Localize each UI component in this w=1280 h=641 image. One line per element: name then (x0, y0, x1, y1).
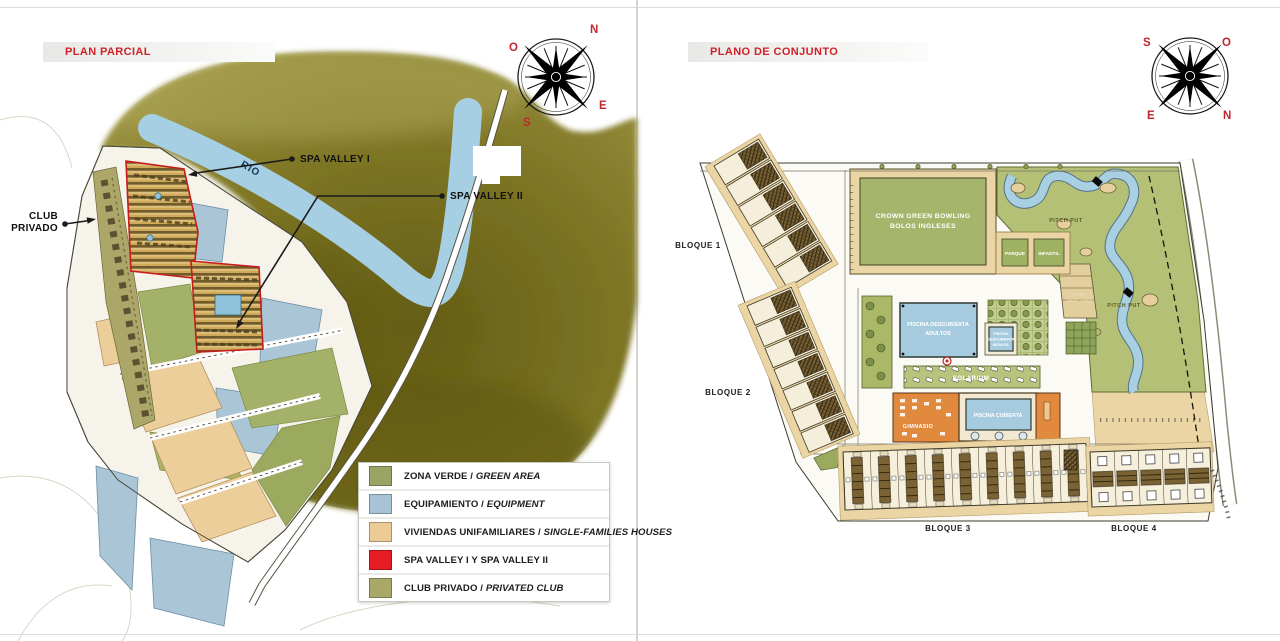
legend: ZONA VERDE / GREEN AREA EQUIPAMIENTO / E… (358, 462, 610, 602)
brochure-page: RIO (0, 0, 1280, 641)
pitch-put-label-2: PITCH PUT (1107, 303, 1141, 309)
indoor-pool-label: PISCINA CUBIERTA (974, 413, 1023, 419)
solarium-label: SOLARIUM (953, 376, 990, 382)
plano-conjunto-map: PITCH PUT PITCH PUT ZONA DESCANSO CROWN … (675, 37, 1231, 533)
bloque-1-label: BLOQUE 1 (675, 241, 721, 250)
compass-e-right: E (1147, 110, 1155, 122)
left-panel-title: PLAN PARCIAL (65, 46, 151, 58)
pool-zone: PISCINA DESCUBIERTA ADULTOS PISCINA DESC… (900, 300, 1048, 388)
maps-canvas: RIO (0, 0, 1280, 641)
playground: PARQUE INFANTIL (996, 232, 1070, 274)
bowling-label-line2: BOLOS INGLESES (890, 223, 956, 230)
legend-row-houses: VIVIENDAS UNIFAMILIARES / SINGLE-FAMILIE… (359, 519, 609, 547)
bowling-label-line1: CROWN GREEN BOWLING (876, 213, 971, 220)
spa-valley-label: SPA VALLEY I Y SPA VALLEY II (404, 555, 548, 566)
compass-n: N (590, 24, 598, 36)
rest-label-line1: ZONA (1073, 292, 1087, 298)
legend-row-equipment: EQUIPAMIENTO / EQUIPMENT (359, 491, 609, 519)
bloque-3-label: BLOQUE 3 (925, 524, 971, 533)
gym-label: GIMNASIO (903, 424, 933, 430)
legend-row-green-area: ZONA VERDE / GREEN AREA (359, 463, 609, 491)
houses-label: VIVIENDAS UNIFAMILIARES / SINGLE-FAMILIE… (404, 527, 672, 538)
equipment-swatch (369, 494, 392, 514)
child-pool-label-1: PISCINA (993, 332, 1009, 336)
rest-label-line2: DESCANSO (1066, 298, 1093, 304)
spa-valley-2-zone (191, 261, 263, 352)
playground-label-2: INFANTIL (1038, 251, 1060, 257)
private-club-label: CLUB PRIVADO / PRIVATED CLUB (404, 583, 564, 594)
spa-valley-swatch (369, 550, 392, 570)
bloque-3-row (838, 437, 1092, 520)
left-panel-title-bar: PLAN PARCIAL (43, 42, 275, 62)
child-pool-label-2: DESCUBIERTA (987, 338, 1014, 342)
bloque-2-label: BLOQUE 2 (705, 388, 751, 397)
right-panel-title-bar: PLANO DE CONJUNTO (688, 42, 928, 62)
pitch-put-label-1: PITCH PUT (1049, 218, 1083, 224)
club-privado-label-line2: PRIVADO (11, 223, 58, 234)
private-club-swatch (369, 578, 392, 598)
adult-pool-label-1: PISCINA DESCUBIERTA (907, 322, 969, 328)
compass-n-right: N (1223, 110, 1231, 122)
spa-valley-1-label: SPA VALLEY I (300, 154, 370, 165)
legend-row-private-club: CLUB PRIVADO / PRIVATED CLUB (359, 575, 609, 601)
club-privado-label-line1: CLUB (29, 211, 58, 222)
green-area-swatch (369, 466, 392, 486)
bloque-4-label: BLOQUE 4 (1111, 524, 1157, 533)
bloque-4-row (1086, 442, 1214, 516)
compass-rose-right: S O E N (1143, 37, 1231, 122)
houses-swatch (369, 522, 392, 542)
compass-s: S (523, 117, 531, 129)
compass-e: E (599, 100, 607, 112)
child-pool-label-3: INFANTIL (992, 343, 1010, 347)
equipment-label: EQUIPAMIENTO / EQUIPMENT (404, 499, 545, 510)
compass-o-right: O (1222, 37, 1231, 49)
sports-building: GIMNASIO PISCINA CUBIERTA (893, 393, 1060, 442)
legend-row-spa-valley: SPA VALLEY I Y SPA VALLEY II (359, 547, 609, 575)
spa-valley-2-label: SPA VALLEY II (450, 191, 523, 202)
right-panel-title: PLANO DE CONJUNTO (710, 46, 838, 58)
compass-s-right: S (1143, 37, 1151, 49)
adult-pool-label-2: ADULTOS (925, 331, 951, 337)
service-block (1064, 450, 1077, 470)
green-area-label: ZONA VERDE / GREEN AREA (404, 471, 540, 482)
adult-pool (900, 303, 977, 357)
compass-o: O (509, 42, 518, 54)
playground-label-1: PARQUE (1005, 251, 1026, 257)
